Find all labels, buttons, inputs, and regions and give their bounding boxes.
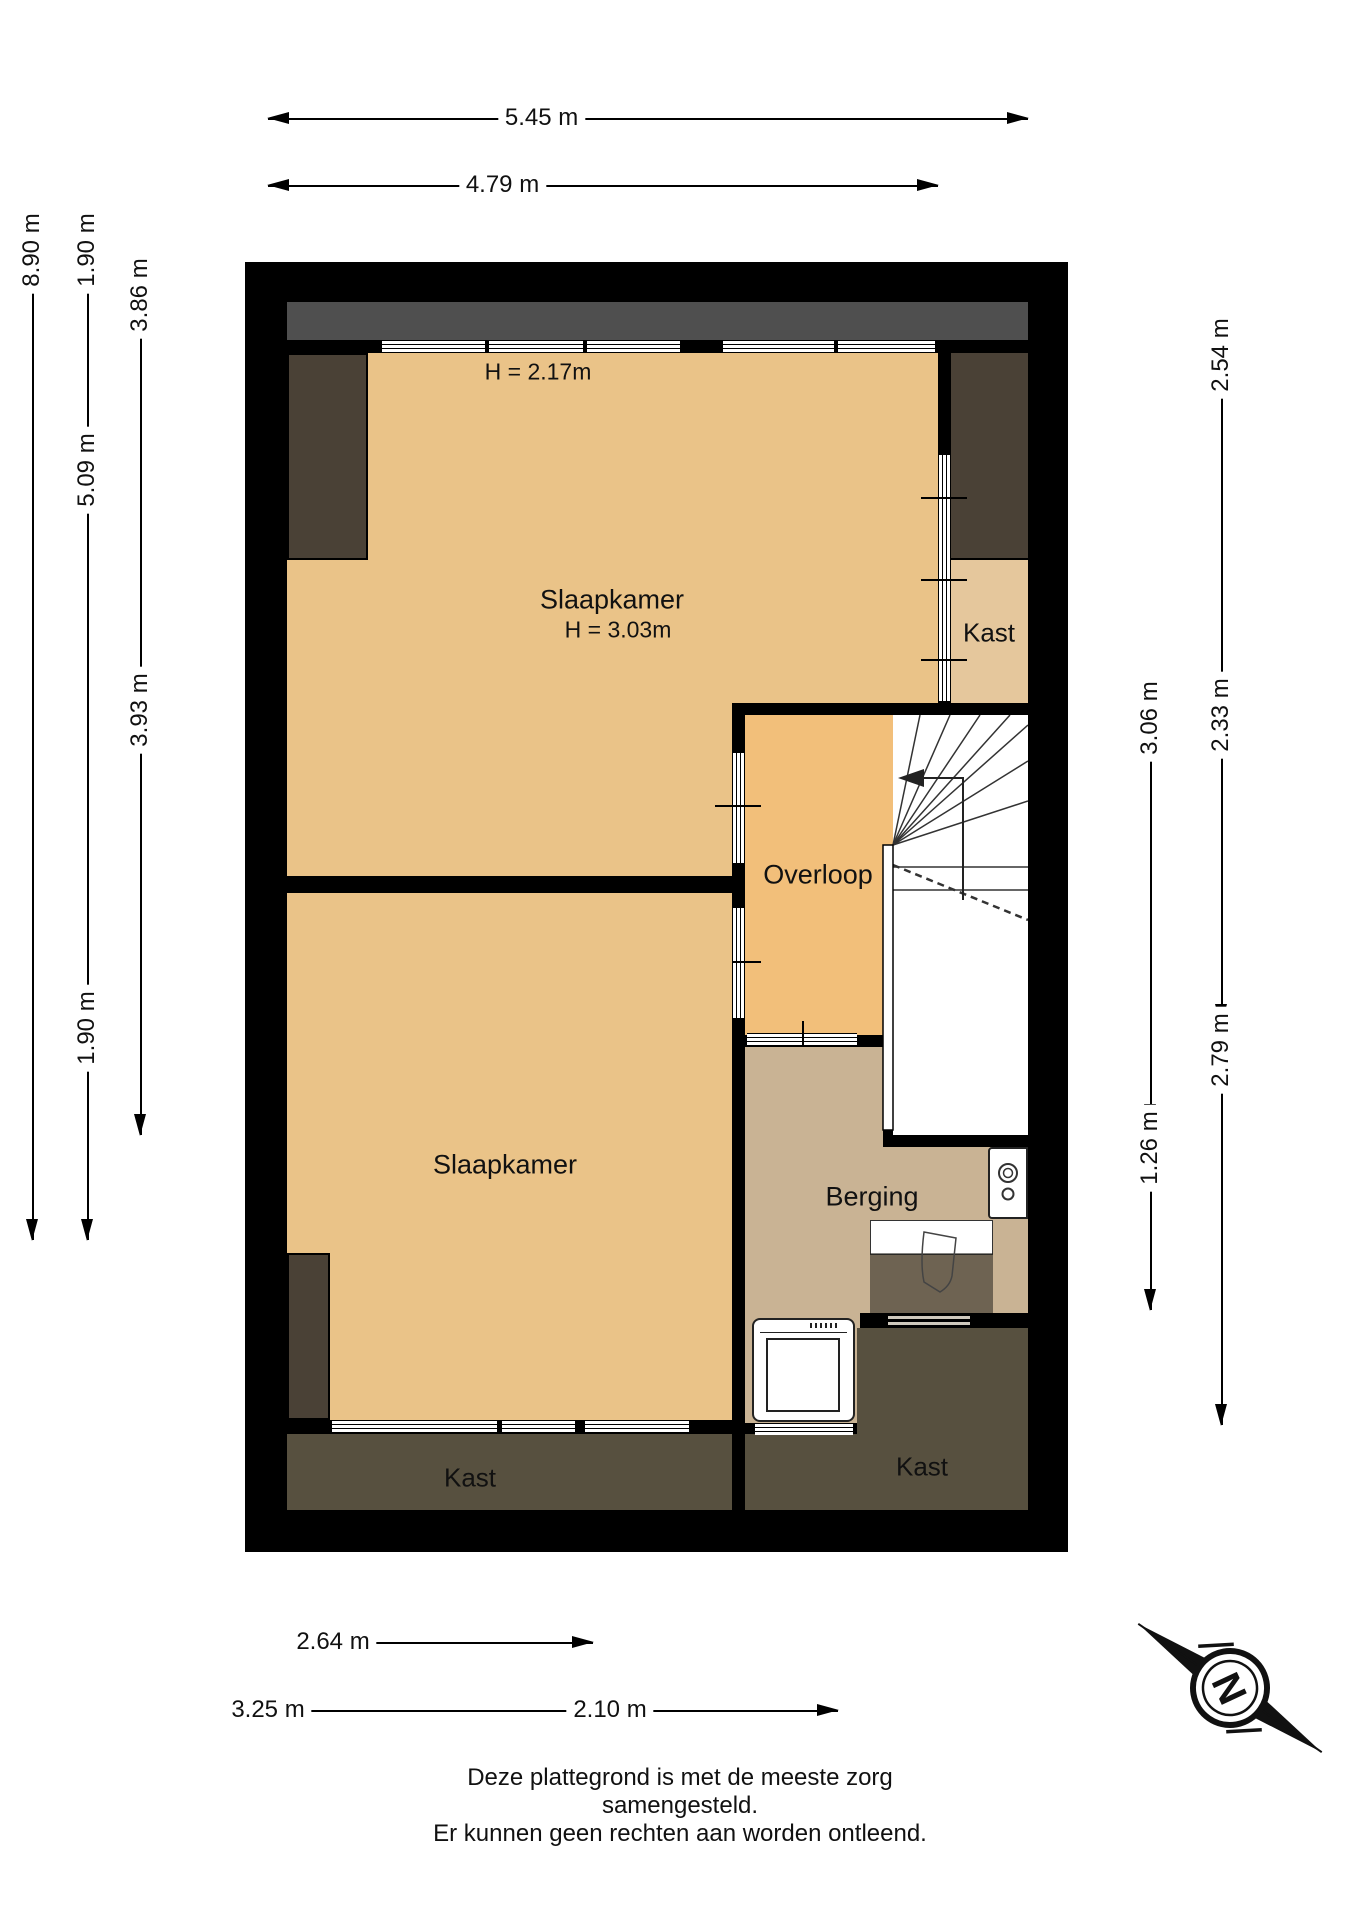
window-top — [382, 340, 935, 353]
compass: N — [1110, 1568, 1350, 1808]
room-height-label: H = 3.03m — [565, 617, 672, 644]
closet-bottomleft — [287, 1253, 330, 1420]
slaapkamer-1-floor — [287, 353, 938, 703]
dim-bottom-210: 2.10 m — [610, 1702, 838, 1718]
room-label-berging: Berging — [825, 1182, 918, 1213]
window-berging — [755, 1423, 853, 1435]
room-label-overloop: Overloop — [763, 860, 873, 891]
roof-band — [287, 302, 1028, 340]
dim-left-393: 3.93 m — [132, 710, 148, 1135]
disclaimer-line1: Deze plattegrond is met de meeste zorg s… — [400, 1764, 960, 1820]
boiler — [988, 1147, 1028, 1219]
dim-right-306: 3.06 m — [1142, 718, 1158, 1125]
door-tick — [921, 659, 967, 661]
floorplan-outer-walls — [245, 262, 1068, 1552]
washing-machine-buttons — [810, 1323, 840, 1328]
dim-left-386: 3.86 m — [132, 295, 148, 710]
north-arrow-icon: N — [1110, 1568, 1350, 1808]
kast-bottomleft-floor — [287, 1434, 732, 1510]
slaapkamer-1-floor-lower — [287, 703, 732, 876]
dim-right-254: 2.54 m — [1213, 355, 1229, 700]
dim-right-233: 2.33 m — [1213, 715, 1229, 1025]
room-label-slaapkamer-2: Slaapkamer — [433, 1150, 577, 1181]
washing-machine-door — [766, 1338, 840, 1412]
dim-top-479: 4.79 m — [268, 177, 938, 193]
window-mullion — [834, 340, 838, 353]
room-label-kast-bottomleft: Kast — [444, 1463, 496, 1494]
closet-topleft — [287, 353, 368, 560]
dim-left-190-bottom: 1.90 m — [79, 1028, 95, 1240]
dim-top-545: 5.45 m — [268, 110, 1028, 126]
dim-right-126: 1.26 m — [1142, 1148, 1158, 1310]
window-bottom — [332, 1420, 689, 1434]
window-mullion — [583, 340, 587, 353]
kast-hatch-door — [888, 1313, 970, 1329]
boiler-icon — [990, 1149, 1026, 1217]
dim-bottom-264: 2.64 m — [333, 1634, 593, 1650]
ceiling-height-label: H = 2.17m — [485, 359, 592, 386]
door-tick — [921, 579, 967, 581]
room-label-slaapkamer-1: Slaapkamer — [540, 585, 684, 616]
window-mullion — [485, 340, 489, 353]
kast-bottomright-floor — [857, 1328, 1028, 1510]
window-mullion — [497, 1420, 502, 1434]
stair-direction-arrow — [898, 769, 924, 787]
shower-symbol-icon — [910, 1224, 970, 1310]
door-slaapkamer1-overloop — [732, 753, 745, 863]
room-label-kast-topright: Kast — [963, 618, 1015, 649]
disclaimer: Deze plattegrond is met de meeste zorg s… — [400, 1764, 960, 1848]
floorplan-page: H = 2.17m Slaapkamer H = 3.03m Kast Over… — [0, 0, 1358, 1920]
window-mullion — [575, 1420, 585, 1434]
dim-left-509: 5.09 m — [79, 470, 95, 1028]
window-wall-pier — [680, 340, 723, 353]
washing-machine — [752, 1318, 855, 1422]
door-tick — [715, 805, 761, 807]
kast-topright-dark — [951, 353, 1028, 560]
door-tick — [921, 497, 967, 499]
sliding-door-kast-topright — [938, 455, 951, 701]
dim-left-890: 8.90 m — [24, 250, 40, 1240]
kast-bottomright-floor2 — [745, 1434, 857, 1510]
stairs — [880, 715, 1028, 1135]
dim-bottom-325: 3.25 m — [268, 1702, 592, 1718]
room-label-kast-bottomright: Kast — [896, 1452, 948, 1483]
disclaimer-line2: Er kunnen geen rechten aan worden ontlee… — [400, 1820, 960, 1848]
door-slaapkamer2-overloop — [732, 908, 745, 1018]
dim-right-279: 2.79 m — [1213, 1050, 1229, 1425]
